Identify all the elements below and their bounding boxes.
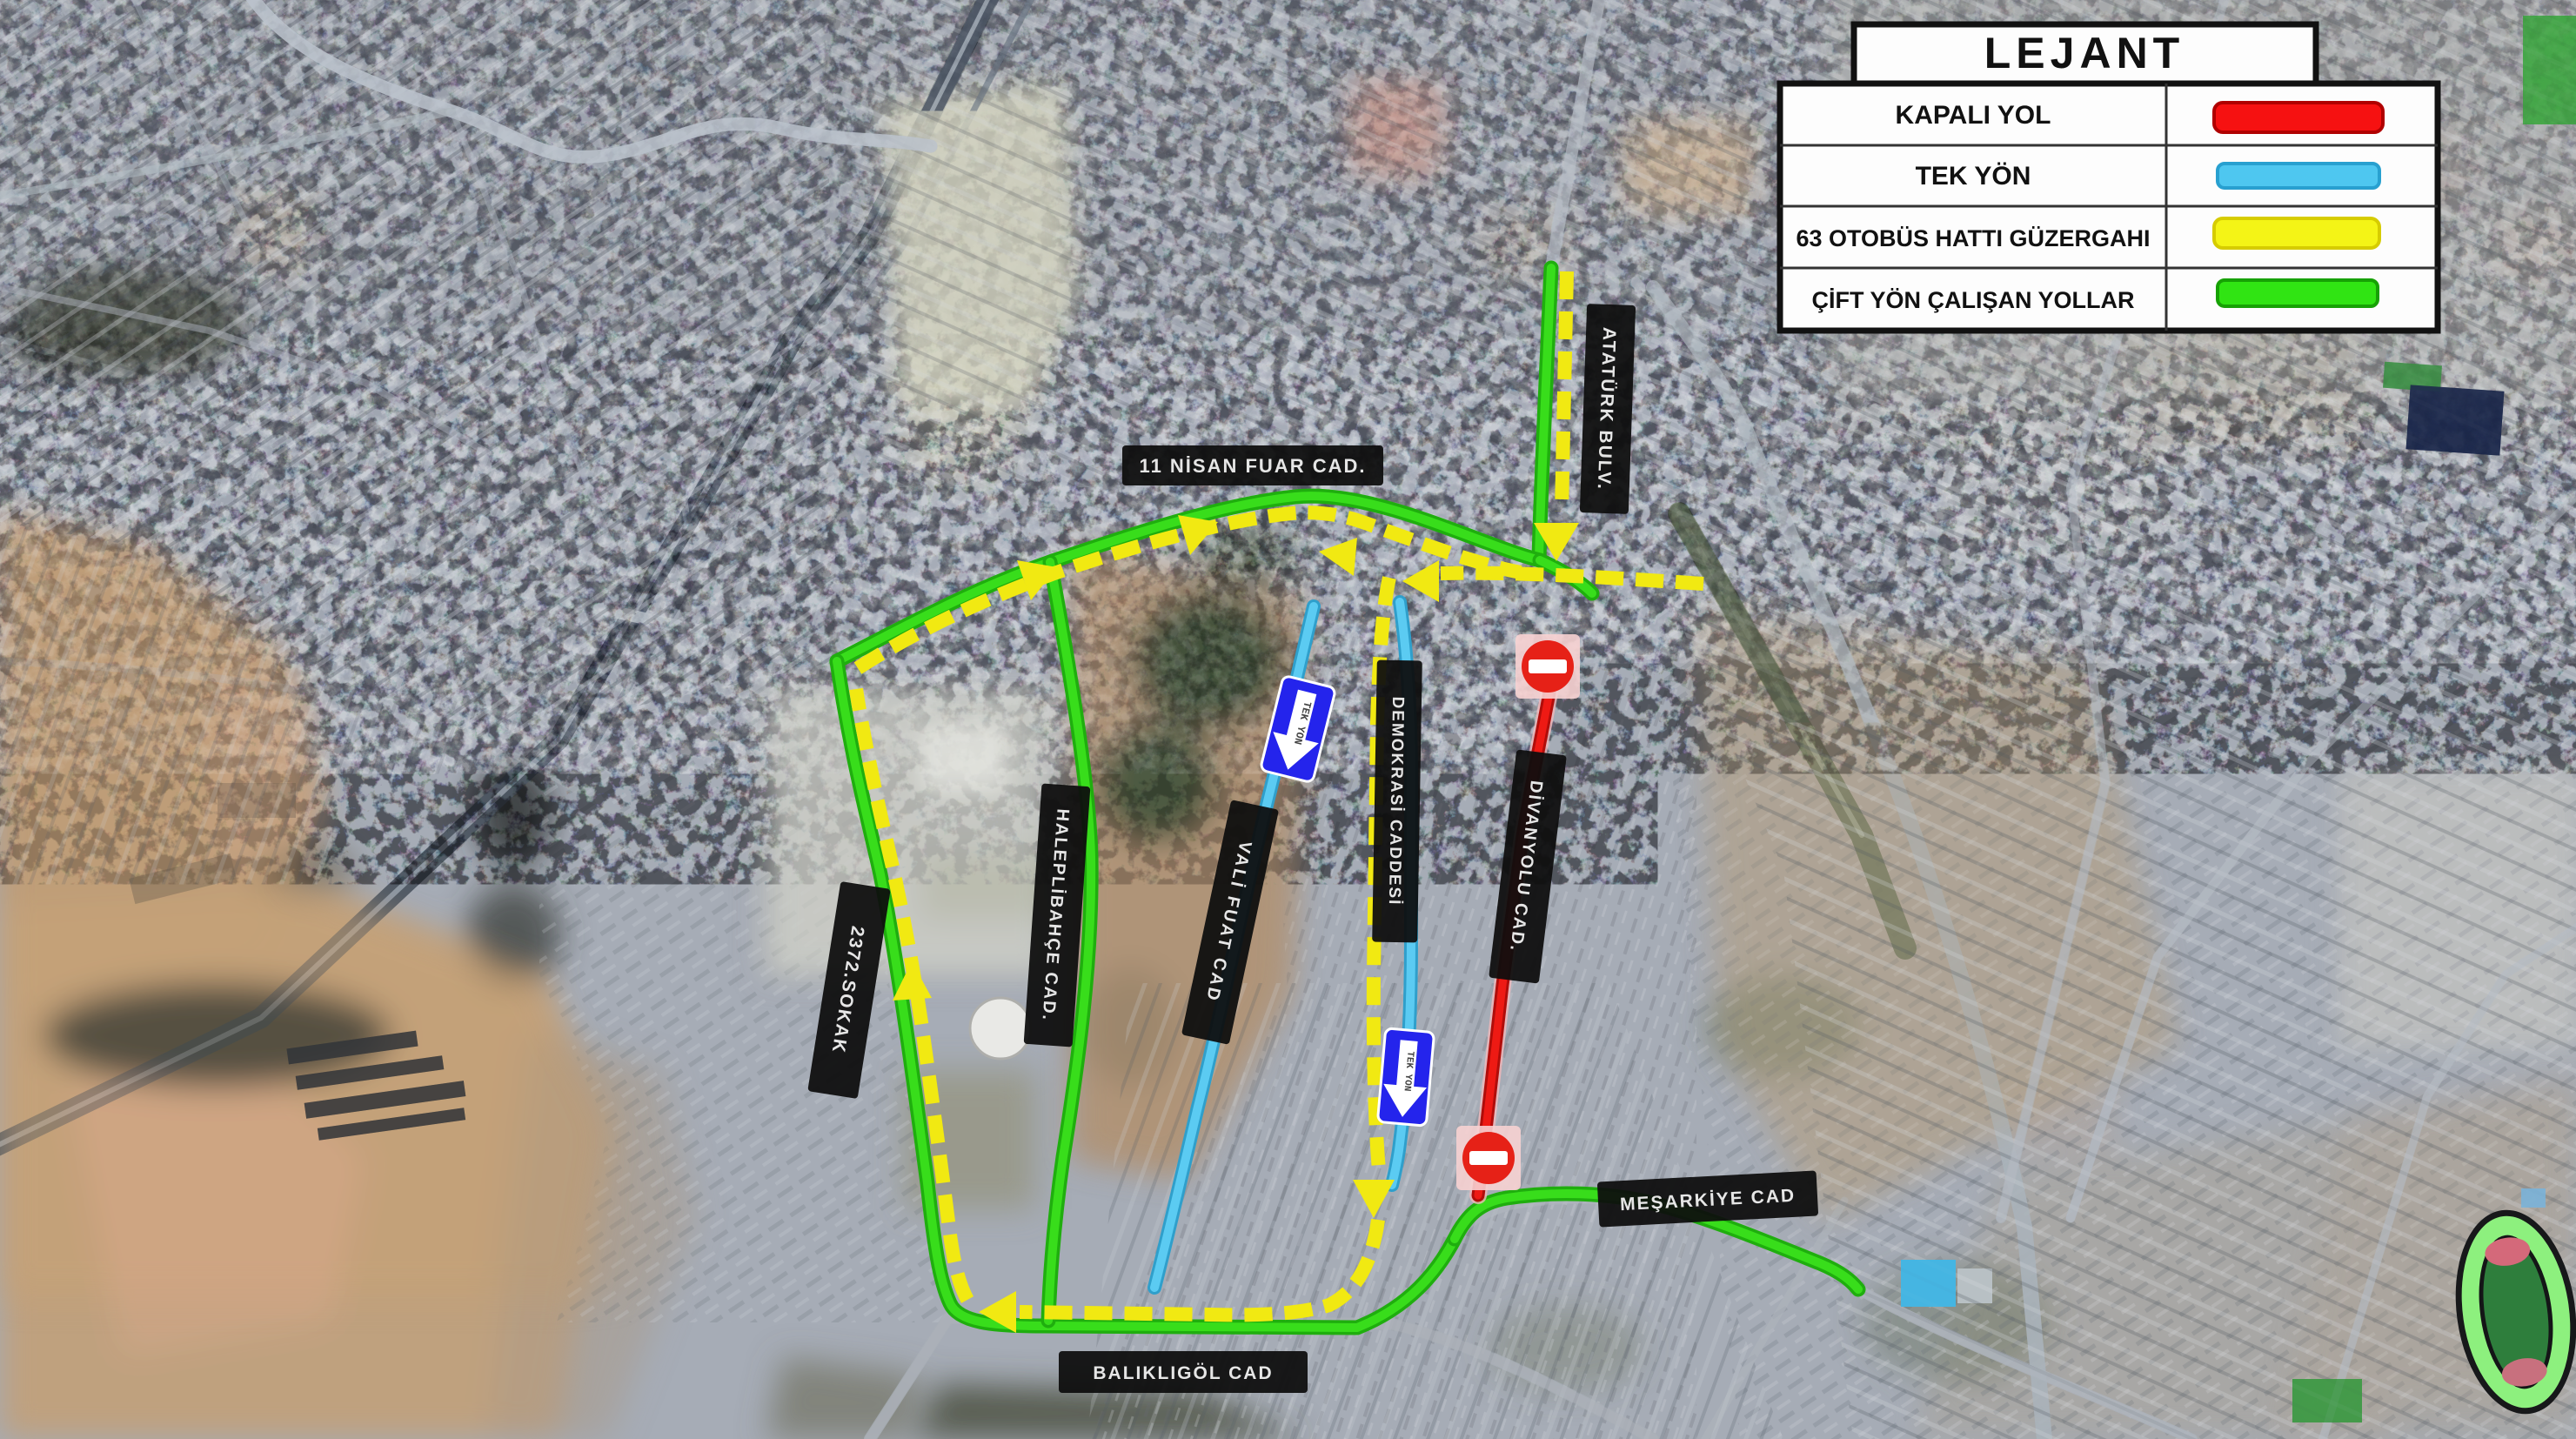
- svg-text:LEJANT: LEJANT: [1984, 29, 2185, 77]
- svg-text:KAPALI YOL: KAPALI YOL: [1896, 101, 2051, 130]
- svg-text:ÇİFT YÖN ÇALIŞAN YOLLAR: ÇİFT YÖN ÇALIŞAN YOLLAR: [1811, 287, 2134, 313]
- svg-text:DEMOKRASİ CADDESİ: DEMOKRASİ CADDESİ: [1385, 696, 1407, 906]
- svg-text:11 NİSAN FUAR CAD.: 11 NİSAN FUAR CAD.: [1140, 455, 1367, 477]
- svg-text:BALIKLIGÖL CAD: BALIKLIGÖL CAD: [1093, 1363, 1273, 1383]
- svg-text:TEK YÖN: TEK YÖN: [1916, 162, 2031, 191]
- svg-text:63 OTOBÜS HATTI GÜZERGAHI: 63 OTOBÜS HATTI GÜZERGAHI: [1796, 225, 2150, 251]
